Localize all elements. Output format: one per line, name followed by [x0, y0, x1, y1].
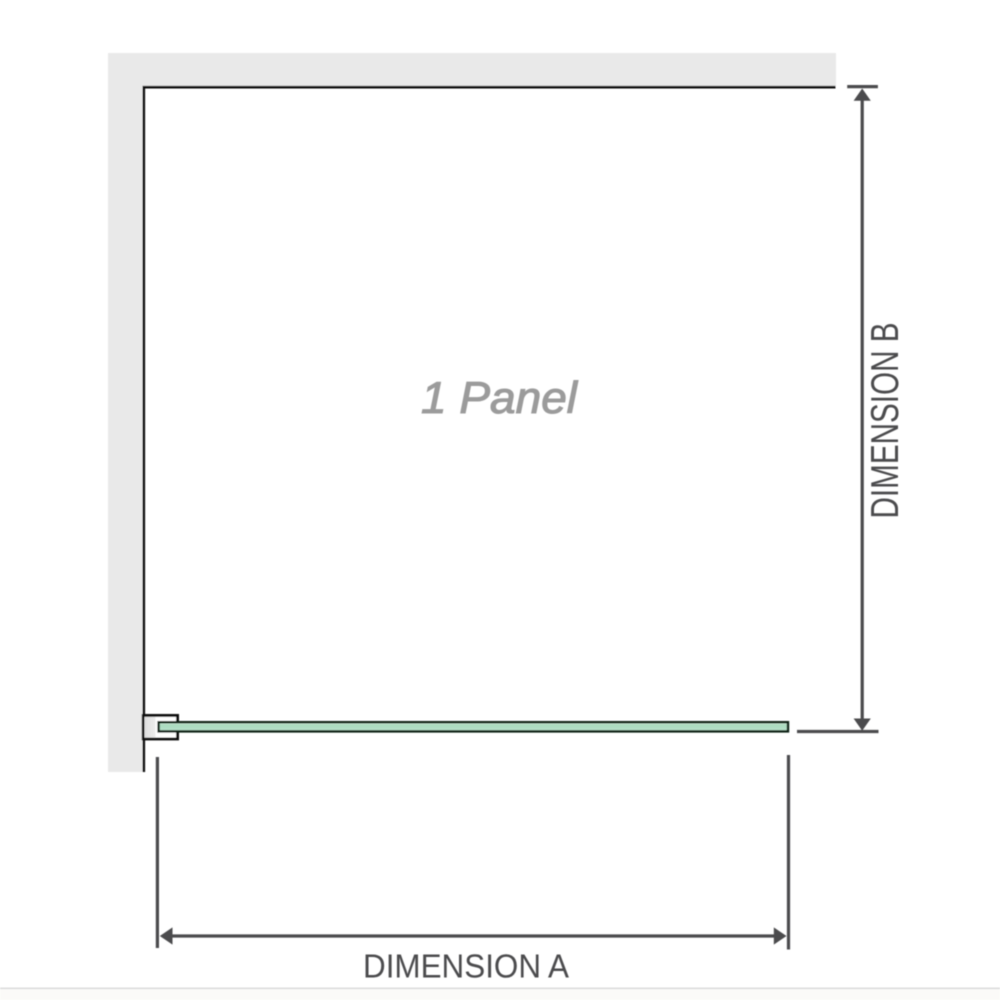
svg-text:1 Panel: 1 Panel	[421, 374, 578, 423]
svg-text:DIMENSION B: DIMENSION B	[864, 323, 907, 519]
svg-text:DIMENSION A: DIMENSION A	[363, 948, 569, 985]
